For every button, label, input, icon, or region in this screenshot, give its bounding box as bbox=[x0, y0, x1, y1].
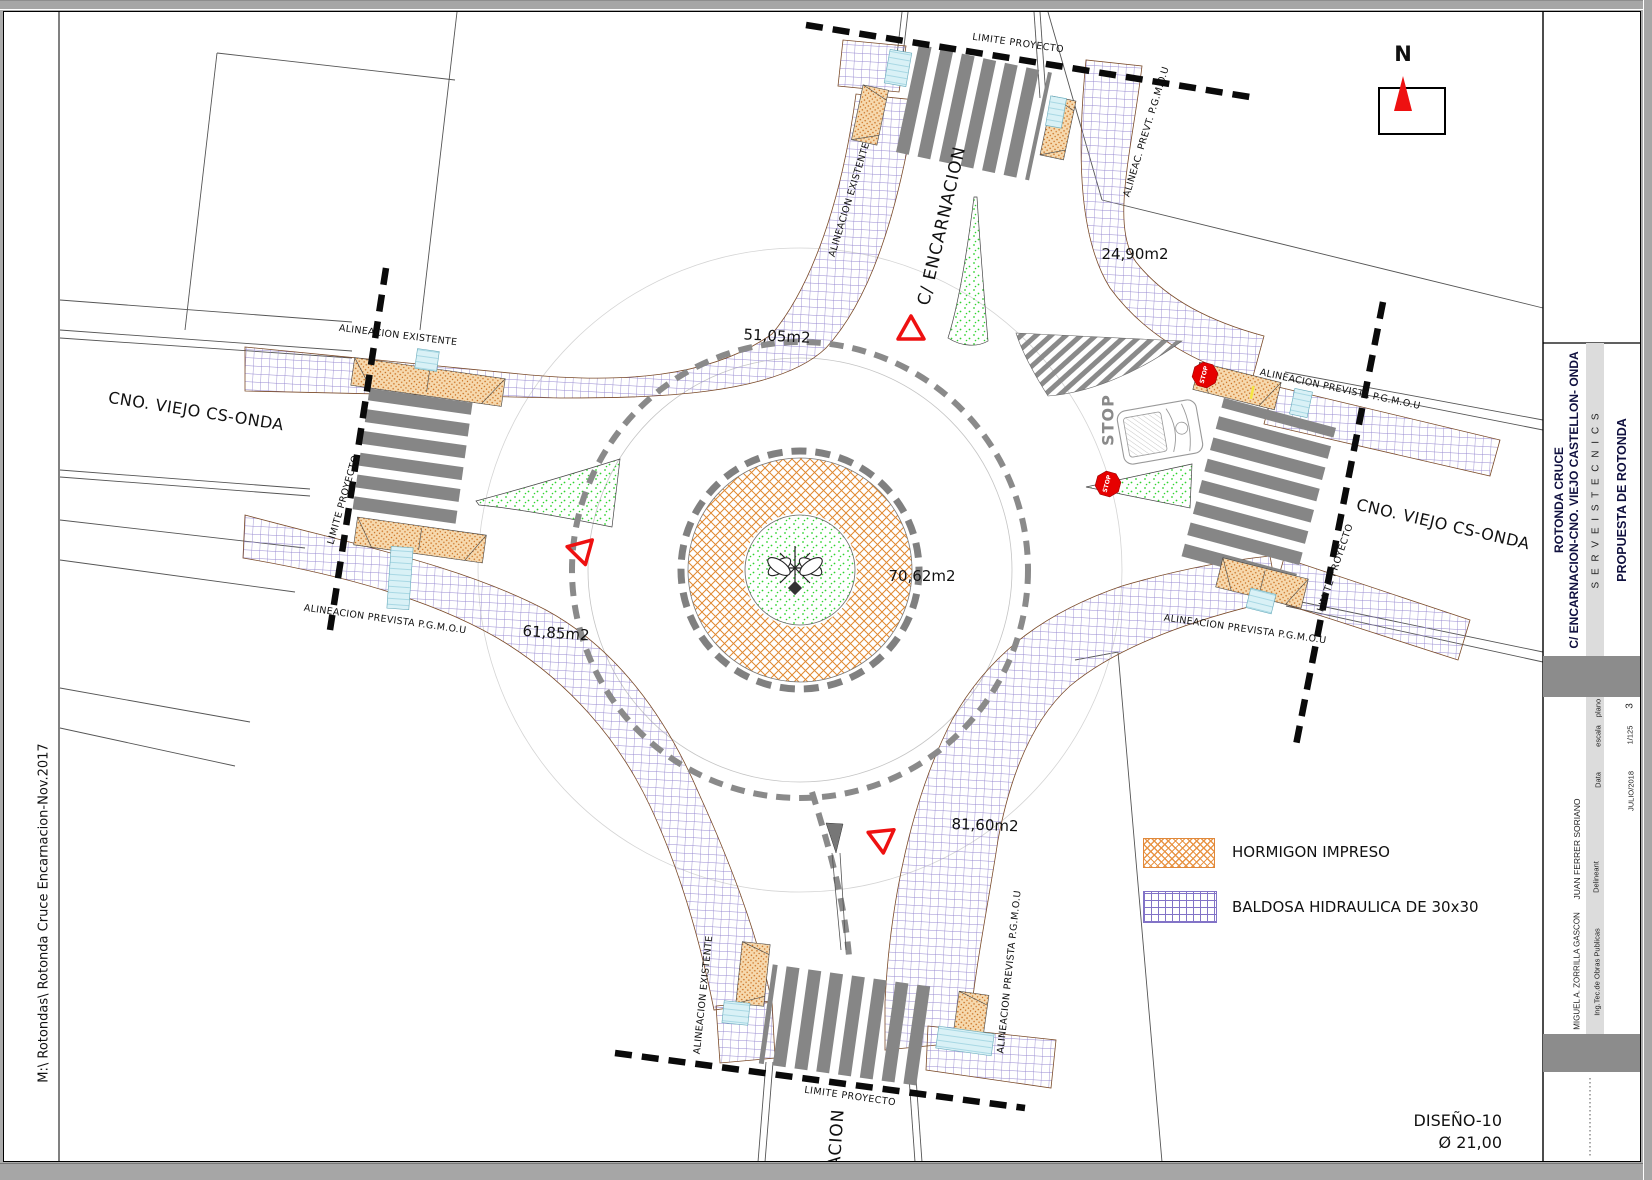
window-chrome-right[interactable] bbox=[1643, 0, 1652, 1180]
drawing-code-line1: DISEÑO-10 bbox=[1310, 1110, 1502, 1132]
legend-swatch-baldosa bbox=[1143, 891, 1217, 923]
pdf-viewer-window: LIMITE PROYECTOALINEACION EXISTENTEALINE… bbox=[0, 0, 1652, 1180]
titleblock-drafter-role: Delineant bbox=[1592, 832, 1601, 922]
titleblock-drafter-name: JUAN FERRER SORIANO bbox=[1572, 789, 1582, 909]
north-label: N bbox=[1388, 42, 1418, 66]
drawing-code-line2: Ø 21,00 bbox=[1310, 1132, 1502, 1154]
window-chrome-top bbox=[0, 0, 1652, 10]
legend-label-hormigon: HORMIGON IMPRESO bbox=[1232, 843, 1390, 861]
titleblock-scale-label: escala bbox=[1594, 711, 1603, 761]
sheet-furniture-layer: M:\ Rotondas\ Rotonda Cruce Encarnacion-… bbox=[0, 0, 1652, 1180]
legend-swatch-hormigon bbox=[1143, 838, 1215, 868]
project-title-line2: C/ ENCARNACION-CNO. VIEJO CASTELLON- OND… bbox=[1567, 343, 1582, 658]
titleblock-project-title: ROTONDA CRUCE C/ ENCARNACION-CNO. VIEJO … bbox=[1552, 343, 1582, 658]
file-path-label: M:\ Rotondas\ Rotonda Cruce Encarnacion-… bbox=[37, 743, 52, 1082]
window-chrome-bottom bbox=[0, 1163, 1652, 1180]
titleblock-engineer-role: Ing.Tec.de Obras Publicas bbox=[1593, 912, 1602, 1032]
north-arrow-box bbox=[1378, 87, 1446, 135]
titleblock-scale-value: 1/125 bbox=[1626, 710, 1635, 760]
drawing-code: DISEÑO-10 Ø 21,00 bbox=[1310, 1110, 1502, 1154]
project-title-line1: ROTONDA CRUCE bbox=[1552, 343, 1567, 658]
titleblock-date-value: JULIO/2018 bbox=[1627, 756, 1636, 826]
north-arrow-icon bbox=[1394, 76, 1412, 111]
titleblock-date-label: Data bbox=[1594, 755, 1603, 805]
legend-label-baldosa: BALDOSA HIDRAULICA DE 30x30 bbox=[1232, 898, 1479, 916]
titleblock-department: S E R V E I S T E C N I C S bbox=[1591, 343, 1602, 658]
titleblock-drawing-title: PROPUESTA DE ROTONDA bbox=[1615, 343, 1629, 658]
titleblock-engineer-name: MIGUEL A. ZORRILLA GASCON bbox=[1573, 901, 1582, 1041]
